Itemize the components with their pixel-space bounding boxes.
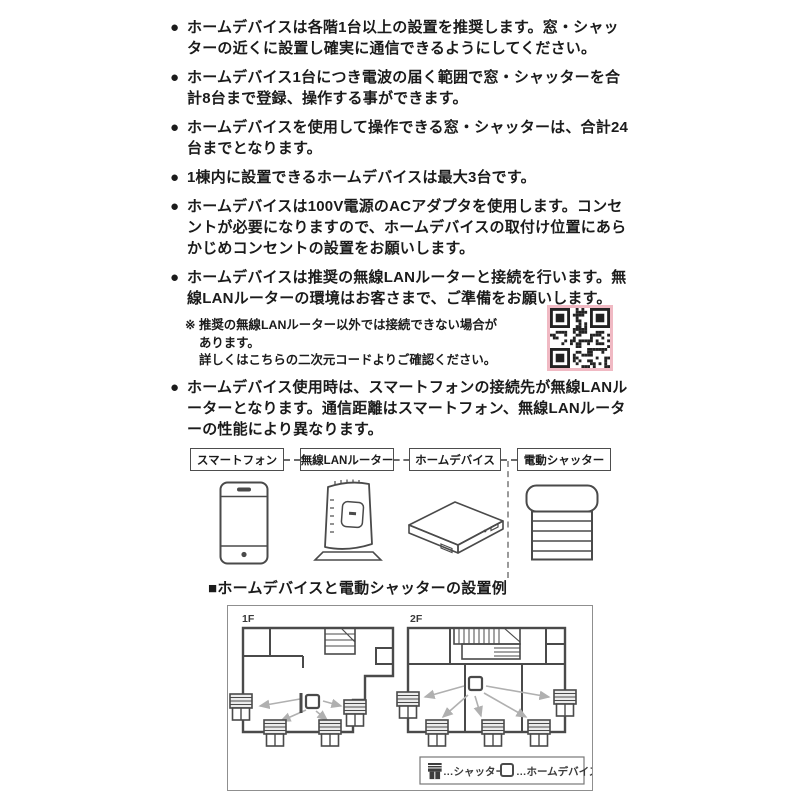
bullet-text: ホームデバイスは各階1台以上の設置を推奨します。窓・シャッターの近くに設置し確実… — [187, 17, 632, 59]
smartphone-icon — [219, 481, 269, 565]
bullet-text: ホームデバイス使用時は、スマートフォンの接続先が無線LANルーターとなります。通… — [187, 377, 632, 440]
home-device-marker-1f — [306, 695, 319, 708]
floorplan-panel: 1F — [227, 605, 593, 791]
section-title: ■ホームデバイスと電動シャッターの設置例 — [208, 577, 507, 598]
floor-2f-label: 2F — [410, 613, 423, 625]
note-line-2: 詳しくはこちらの二次元コードよりご確認ください。 — [199, 353, 496, 367]
chain-vertical-divider — [507, 461, 509, 578]
bullet-item: ● ホームデバイスを使用して操作できる窓・シャッターは、合計24台までとなります… — [170, 117, 632, 159]
floorplan-legend: …シャッター …ホームデバイス — [420, 757, 592, 784]
bullet-item: ● ホームデバイスは100V電源のACアダプタを使用します。コンセントが必要にな… — [170, 196, 632, 259]
legend-home-device-icon — [501, 764, 513, 776]
shutter-marker — [528, 720, 550, 746]
floorplan-diagram: 1F — [228, 606, 592, 790]
shutter-marker — [554, 690, 576, 716]
legend-shutter-label: …シャッター — [443, 766, 506, 778]
bullet-text: ホームデバイスは推奨の無線LANルーターと接続を行います。無線LANルーターの環… — [187, 267, 632, 309]
note-line-1: 推奨の無線LANルーター以外では接続できない場合があります。 — [199, 318, 497, 350]
stairs-2f — [454, 628, 520, 659]
shutter-marker — [397, 692, 419, 718]
home-device-marker-2f — [469, 677, 482, 690]
electric-shutter-icon — [525, 484, 599, 562]
bullet-marker: ● — [170, 267, 187, 309]
chain-connector — [284, 459, 300, 461]
bullet-item: ● ホームデバイスは各階1台以上の設置を推奨します。窓・シャッターの近くに設置し… — [170, 17, 632, 59]
shutter-marker — [264, 720, 286, 746]
bullet-item: ● 1棟内に設置できるホームデバイスは最大3台です。 — [170, 167, 632, 188]
legend-shutter-icon — [428, 763, 442, 779]
note-marker: ※ — [185, 317, 199, 370]
qr-code-pattern — [550, 308, 610, 368]
chain-node-shutter: 電動シャッター — [517, 448, 611, 471]
bullet-item: ● ホームデバイスは推奨の無線LANルーターと接続を行います。無線LANルーター… — [170, 267, 632, 309]
shutter-marker — [319, 720, 341, 746]
floor-1f-label: 1F — [242, 613, 255, 625]
info-text-block: ● ホームデバイスは各階1台以上の設置を推奨します。窓・シャッターの近くに設置し… — [170, 17, 632, 448]
chain-node-router: 無線LANルーター — [300, 448, 394, 471]
shutter-marker — [230, 694, 252, 720]
shutter-marker — [426, 720, 448, 746]
stairs-1f — [325, 628, 355, 654]
bullet-marker: ● — [170, 117, 187, 159]
bullet-text: 1棟内に設置できるホームデバイスは最大3台です。 — [187, 167, 632, 188]
bullet-marker: ● — [170, 17, 187, 59]
bullet-item: ● ホームデバイス1台につき電波の届く範囲で窓・シャッターを合計8台まで登録、操… — [170, 67, 632, 109]
shutter-marker — [482, 720, 504, 746]
floor-1f: 1F — [230, 613, 393, 746]
chain-connector — [501, 459, 517, 461]
chain-node-smartphone: スマートフォン — [190, 448, 284, 471]
signal-arrows-2f — [425, 686, 549, 717]
shutter-marker — [344, 700, 366, 726]
bullet-text: ホームデバイスは100V電源のACアダプタを使用します。コンセントが必要になりま… — [187, 196, 632, 259]
home-device-icon — [406, 498, 506, 556]
chain-connector — [394, 459, 409, 461]
page: ● ホームデバイスは各階1台以上の設置を推奨します。窓・シャッターの近くに設置し… — [0, 0, 800, 800]
bullet-marker: ● — [170, 377, 187, 440]
floor-2f: 2F — [397, 613, 576, 746]
bullet-marker: ● — [170, 196, 187, 259]
chain-node-home-device: ホームデバイス — [409, 448, 501, 471]
bullet-text: ホームデバイス1台につき電波の届く範囲で窓・シャッターを合計8台まで登録、操作す… — [187, 67, 632, 109]
bullet-item: ● ホームデバイス使用時は、スマートフォンの接続先が無線LANルーターとなります… — [170, 377, 632, 440]
qr-code — [547, 305, 613, 371]
legend-home-device-label: …ホームデバイス — [516, 765, 592, 778]
bullet-marker: ● — [170, 67, 187, 109]
bullet-text: ホームデバイスを使用して操作できる窓・シャッターは、合計24台までとなります。 — [187, 117, 632, 159]
wifi-router-icon — [311, 478, 387, 566]
bullet-marker: ● — [170, 167, 187, 188]
